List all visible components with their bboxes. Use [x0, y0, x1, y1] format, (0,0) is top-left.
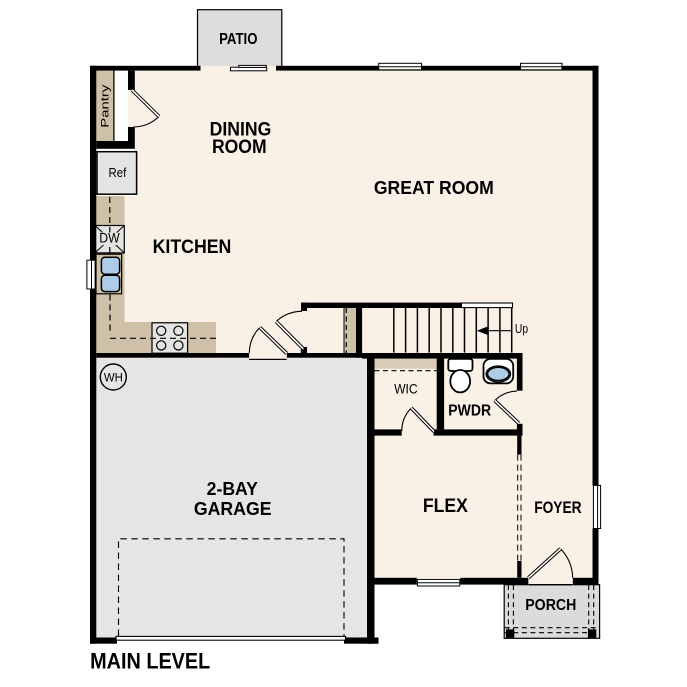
svg-text:PORCH: PORCH [525, 597, 576, 614]
svg-text:GREAT ROOM: GREAT ROOM [374, 177, 494, 198]
svg-text:PWDR: PWDR [448, 403, 491, 420]
svg-text:Up: Up [515, 322, 528, 336]
svg-text:MAIN LEVEL: MAIN LEVEL [90, 648, 210, 673]
svg-text:KITCHEN: KITCHEN [153, 237, 232, 258]
svg-text:WIC: WIC [394, 380, 418, 396]
svg-text:WH: WH [104, 371, 123, 385]
svg-text:ROOM: ROOM [212, 137, 267, 158]
svg-text:FLEX: FLEX [423, 496, 468, 517]
svg-text:FOYER: FOYER [534, 499, 582, 517]
svg-text:Pantry: Pantry [100, 84, 112, 128]
svg-text:DW: DW [99, 231, 120, 246]
svg-text:Ref: Ref [109, 165, 127, 180]
svg-text:2-BAY: 2-BAY [207, 478, 259, 499]
svg-text:PATIO: PATIO [219, 31, 257, 48]
svg-text:GARAGE: GARAGE [194, 498, 272, 519]
